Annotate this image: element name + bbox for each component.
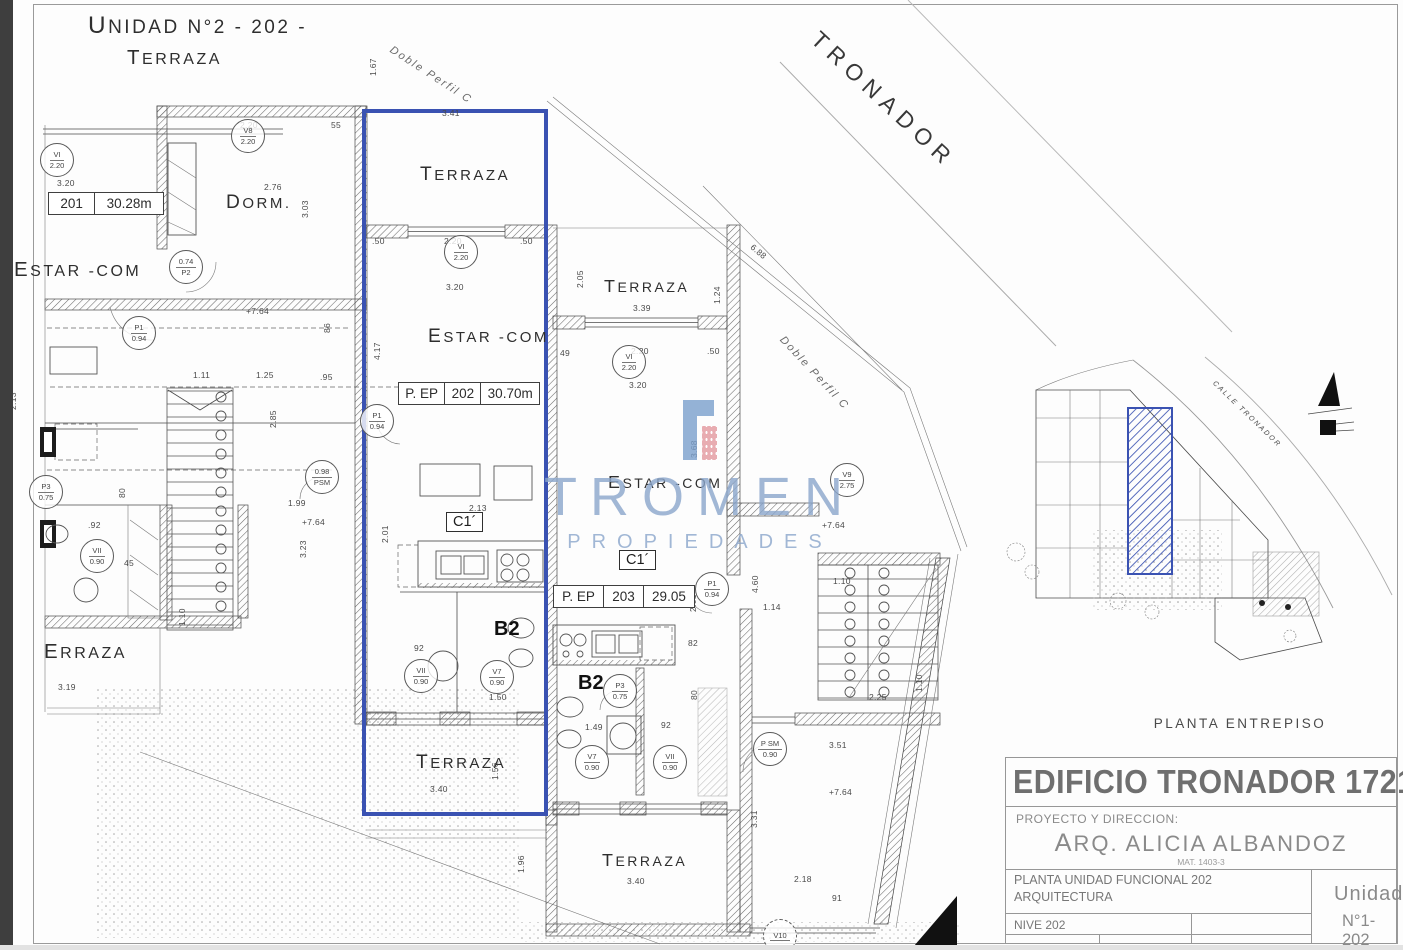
title-block-divider [1006, 934, 1311, 935]
room-label: TERRAZA [602, 850, 687, 871]
schedule-circle-tag: V70.90 [480, 660, 514, 694]
schedule-circle-tag: P30.75 [603, 674, 637, 708]
project-label: PROYECTO Y DIRECCION: [1016, 812, 1179, 826]
dimension-label: 2.76 [264, 182, 282, 192]
sheet-description-line2: ARQUITECTURA [1014, 890, 1113, 904]
dimension-label: 3.40 [430, 784, 448, 794]
level-label: NIVE 202 [1014, 918, 1065, 932]
room-label: ESTAR -COM [14, 258, 141, 282]
dimension-label: 2.25 [869, 692, 887, 702]
dimension-label: 3.39 [633, 303, 651, 313]
title-block: EDIFICIO TRONADOR 1721 PROYECTO Y DIRECC… [1005, 757, 1397, 944]
dimension-label: 1.24 [712, 286, 722, 304]
dimension-label: 3.19 [58, 682, 76, 692]
dimension-label: 80 [689, 690, 699, 700]
dimension-label: 55 [331, 120, 341, 130]
dimension-label: 3.03 [300, 200, 310, 218]
dimension-label: 4.17 [372, 342, 382, 360]
dimension-label: 1.67 [368, 58, 378, 76]
schedule-circle-tag: 0.98PSM [305, 460, 339, 494]
dimension-label: 1.96 [516, 855, 526, 873]
unit-area-box: P. EP20329.05 [553, 585, 695, 608]
schedule-circle-tag: V70.90 [575, 745, 609, 779]
title-block-divider [1191, 913, 1192, 943]
schedule-circle-tag: VII0.90 [653, 745, 687, 779]
sheet-description-line1: PLANTA UNIDAD FUNCIONAL 202 [1014, 873, 1212, 887]
kitchen-tag: C1´ [619, 550, 656, 570]
dimension-label: 3.40 [627, 876, 645, 886]
dimension-label: 3.51 [829, 740, 847, 750]
architect-name: ARQ. ALICIA ALBANDOZ [1006, 829, 1396, 858]
dimension-label: 1.49 [585, 722, 603, 732]
dimension-label: .50 [372, 236, 385, 246]
dimension-label: 92 [414, 643, 424, 653]
dimension-label: 4.60 [750, 575, 760, 593]
screen-bottom-strip [0, 945, 1403, 950]
dimension-label: 86 [322, 323, 332, 333]
dimension-label: 1.25 [256, 370, 274, 380]
dimension-label: 1.10 [833, 576, 851, 586]
room-label: ERRAZA [44, 640, 127, 664]
dimension-label: 3.31 [749, 810, 759, 828]
dimension-label: 91 [832, 893, 842, 903]
dimension-label: 45 [124, 558, 134, 568]
inset-caption: PLANTA ENTREPISO [1080, 716, 1400, 731]
dimension-label: .50 [707, 346, 720, 356]
room-label: B2 [494, 618, 520, 641]
floorplan-sheet: UNIDAD N°2 - 202 -TERRAZADORM.ESTAR -COM… [0, 0, 1403, 950]
dimension-label: 1.11 [193, 370, 210, 380]
schedule-circle-tag: VII0.90 [80, 539, 114, 573]
room-label: UNIDAD N°2 - 202 - [88, 12, 307, 40]
screen-edge-strip [0, 0, 13, 950]
compass-icon [1308, 372, 1354, 435]
room-label: ESTAR -COM [608, 472, 722, 493]
dimension-label: 49 [560, 348, 570, 358]
dimension-label: 1.99 [288, 498, 306, 508]
schedule-circle-tag: V92.75 [830, 463, 864, 497]
building-title: EDIFICIO TRONADOR 1721 [1013, 763, 1403, 801]
dimension-label: 2.85 [268, 410, 278, 428]
architect-registration: MAT. 1403-3 [1006, 857, 1396, 867]
title-block-row-architect: PROYECTO Y DIRECCION: ARQ. ALICIA ALBAND… [1006, 807, 1396, 870]
schedule-circle-tag: P10.94 [695, 572, 729, 606]
unit-area-box: 20130.28m [48, 192, 164, 215]
dimension-label: 3.20 [57, 178, 75, 188]
title-block-divider [1006, 913, 1311, 914]
dimension-label: 1.56 [490, 762, 500, 780]
dimension-label: 3.20 [629, 380, 647, 390]
dimension-label: .95 [320, 372, 333, 382]
title-block-divider [1099, 934, 1100, 943]
dimension-label: 1.10 [177, 608, 187, 626]
dimension-label: 2.05 [575, 270, 585, 288]
dimension-label: +7.64 [822, 520, 845, 530]
dimension-label: 80 [117, 488, 127, 498]
schedule-circle-tag: VI2.20 [40, 143, 74, 177]
schedule-circle-tag: P30.75 [29, 475, 63, 509]
schedule-circle-tag: 0.74P2 [169, 250, 203, 284]
room-label: B2 [578, 672, 604, 695]
dimension-label: .50 [520, 236, 533, 246]
dimension-label: 3.23 [298, 540, 308, 558]
schedule-circle-tag: P10.94 [360, 404, 394, 438]
schedule-circle-tag: VI2.20 [444, 235, 478, 269]
dimension-label: .92 [88, 520, 101, 530]
unit-202-minimap-highlight [1128, 408, 1172, 574]
dimension-label: 2.18 [794, 874, 812, 884]
kitchen-tag: C1´ [446, 512, 483, 532]
schedule-circle-tag: VI2.20 [612, 345, 646, 379]
dimension-label: +7.64 [302, 517, 325, 527]
schedule-circle-tag: P SM0.90 [753, 732, 787, 766]
title-block-row-building: EDIFICIO TRONADOR 1721 [1006, 758, 1396, 807]
dimension-label: 3.20 [446, 282, 464, 292]
dimension-label: 2.01 [380, 525, 390, 543]
dimension-label: 3.68 [689, 440, 699, 458]
dimension-label: 3.41 [442, 108, 460, 118]
schedule-circle-tag: P10.94 [122, 316, 156, 350]
room-label: DORM. [226, 192, 292, 214]
dimension-label: 82 [688, 638, 698, 648]
site-plan-inset [1007, 357, 1392, 660]
unit-label: Unidad [1334, 883, 1403, 906]
dimension-label: +7.64 [246, 306, 269, 316]
title-block-divider [1311, 869, 1312, 943]
dimension-label: 1.14 [763, 602, 781, 612]
room-label: TERRAZA [420, 164, 510, 186]
dimension-label: 92 [661, 720, 671, 730]
dimension-label: 1.10 [914, 674, 924, 692]
schedule-circle-tag: V82.20 [231, 119, 265, 153]
dimension-label: +7.64 [829, 787, 852, 797]
schedule-circle-tag: VII0.90 [404, 659, 438, 693]
room-label: ESTAR -COM [428, 326, 549, 348]
room-label: TERRAZA [127, 46, 222, 70]
north-triangle-icon [914, 896, 957, 946]
title-block-row-sheet: PLANTA UNIDAD FUNCIONAL 202 ARQUITECTURA… [1006, 869, 1396, 943]
room-label: TERRAZA [604, 276, 689, 297]
unit-area-box: P. EP20230.70m [398, 382, 540, 405]
